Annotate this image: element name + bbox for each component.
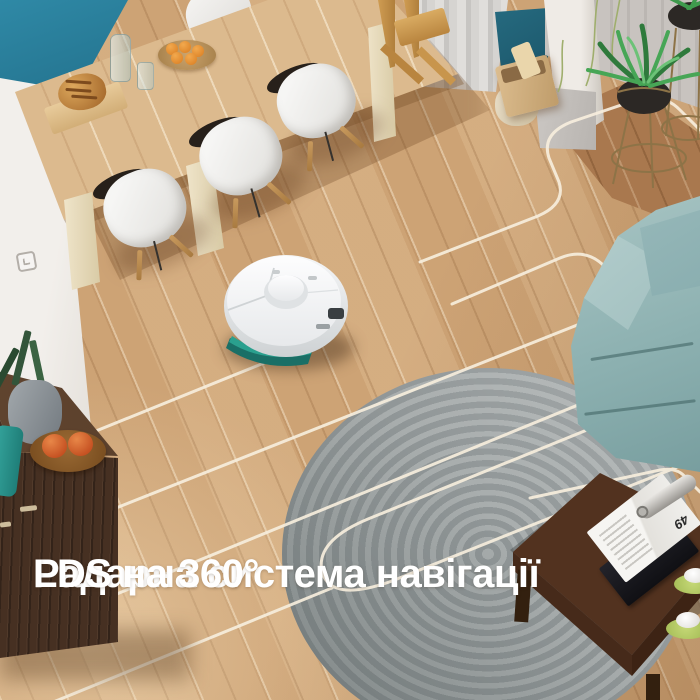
chair-leg <box>136 250 142 280</box>
tangerine <box>185 53 197 65</box>
bread-score <box>65 88 91 93</box>
chair-leg <box>232 198 238 228</box>
tangerine <box>179 41 191 53</box>
bread-score <box>71 95 97 100</box>
cup <box>676 612 700 628</box>
hanging-stems <box>558 0 620 92</box>
robot-side-vent <box>316 324 330 329</box>
tomato <box>68 432 93 456</box>
living-room-scene: 49 <box>0 0 700 700</box>
plate-of-tangerines <box>158 40 216 70</box>
caption-line-2: LDS на 360° <box>33 549 259 599</box>
plant-stands <box>545 0 700 210</box>
plant-stand-left <box>588 26 698 188</box>
teal-sofa <box>560 190 700 480</box>
robot-lds-turret-top <box>268 275 304 301</box>
fruit-bowl <box>30 430 106 472</box>
tangerine <box>171 52 183 64</box>
tomato <box>42 434 67 458</box>
magazine-page-number: 49 <box>671 512 691 533</box>
robot-button <box>272 270 280 274</box>
cup <box>684 568 700 583</box>
robot-button <box>308 276 317 280</box>
chair-leg <box>307 141 313 171</box>
glass-carafe <box>110 34 131 82</box>
robot-sensor-window <box>328 308 344 319</box>
robot-vacuum <box>212 246 364 378</box>
drinking-glass <box>137 62 154 90</box>
coffee-table-leg <box>646 674 660 700</box>
bread-score <box>65 80 91 85</box>
